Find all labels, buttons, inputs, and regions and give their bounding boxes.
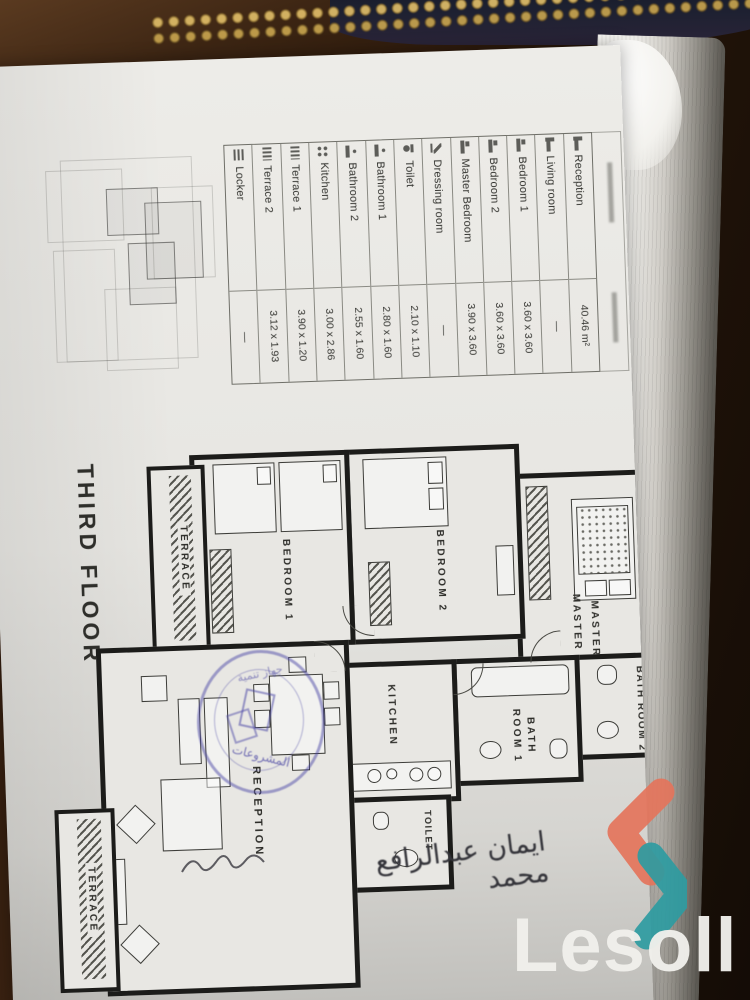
room-label: Terrace 2 [261,165,277,289]
armchair [141,675,168,702]
room-dimension: 2.55 x 1.60 [343,286,374,380]
room-label: Terrace 1 [289,164,305,288]
table-body: Reception40.46 m² Living room— Bedroom 1… [223,132,600,385]
bath-icon [374,143,385,157]
sofa-icon [572,136,583,150]
pillow [585,580,608,597]
room-label: Living room [544,155,560,279]
room-bedroom-1: BEDROOM 1 [189,450,356,650]
toilet-fixture [479,741,502,760]
bathtub [471,664,570,697]
locker-icon [233,148,244,162]
wardrobe [525,486,551,601]
room-label-bathroom1: BATH ROOM 1 [508,705,538,766]
pillow [257,466,272,484]
sink [549,738,568,759]
lesoll-brand-text: Lesoll [512,902,738,989]
terrace-icon [261,147,272,161]
pillow [427,461,443,484]
pillow [609,579,632,596]
room-label: Dressing room [431,159,447,283]
armchair [116,805,156,845]
handwriting-scribble [178,842,268,892]
toilet-fixture [597,720,620,739]
room-label: Kitchen [318,162,334,287]
room-label: Master Bedroom [459,158,475,282]
room-dimension: 3.90 x 3.60 [456,282,487,376]
toilet-icon [402,142,413,156]
rug [160,777,222,851]
room-dimension: 2.80 x 1.60 [371,285,402,379]
building-key-plan [39,145,219,391]
chair [323,681,340,700]
room-label-bedroom1: BEDROOM 1 [280,539,294,622]
room-label-kitchen: KITCHEN [385,684,398,746]
room-label-bedroom2: BEDROOM 2 [434,529,448,612]
pillow [428,487,444,510]
room-label: Bathroom 2 [346,162,362,286]
pillow [322,464,337,482]
room-label: Reception [572,154,588,278]
mattress [576,505,630,575]
book-photo: Reception40.46 m² Living room— Bedroom 1… [0,0,750,1000]
sink [597,664,618,685]
bath-icon [346,144,357,158]
room-label: Locker [233,166,249,290]
room-terrace-bottom: TERRACE [54,808,120,993]
room-dimension: — [229,290,260,384]
room-dimension: 3.60 x 3.60 [484,281,515,375]
room-label: Toilet [402,160,418,284]
room-label: Bathroom 1 [374,161,390,285]
bed-icon [459,140,470,154]
chair [324,707,341,726]
room-dimension: 2.10 x 1.10 [399,284,430,378]
room-dimension: 3.00 x 2.86 [314,287,345,381]
wardrobe [209,549,234,634]
bed-icon [515,138,526,152]
room-label: Bedroom 2 [487,157,503,281]
bed-icon [487,139,498,153]
room-dimension: 3.90 x 1.20 [286,288,317,382]
room-label: MASTER [588,596,601,662]
hanger-icon [431,141,442,155]
room-dimension: 40.46 m² [569,278,600,372]
sink [373,812,390,831]
room-label: Bedroom 1 [516,156,532,280]
terrace-icon [289,146,300,160]
room-dimension: — [541,279,572,373]
room-terrace-top: TERRACE [146,465,211,655]
room-dimensions-table: Reception40.46 m² Living room— Bedroom 1… [223,131,629,385]
stove-icon [318,145,329,158]
sofa-icon [544,137,555,151]
room-dimension: 3.60 x 3.60 [512,280,543,374]
desk [495,545,515,596]
room-dimension: 3.12 x 1.93 [258,289,289,383]
official-stamp: جهاز تنمية المشروعات [197,650,325,794]
room-dimension: — [427,283,458,377]
armchair [120,925,160,965]
